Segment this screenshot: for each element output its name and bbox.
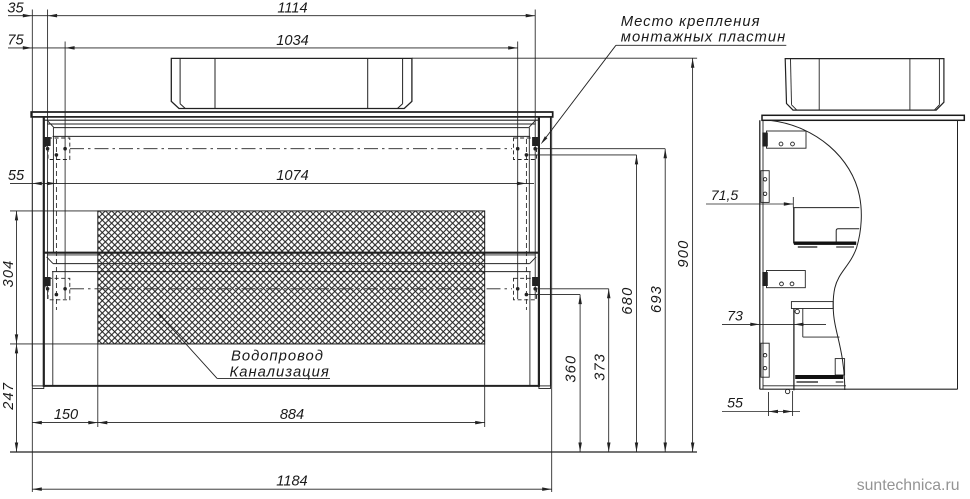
svg-text:Место крепления: Место крепления (621, 14, 761, 30)
svg-text:360: 360 (564, 355, 580, 383)
svg-text:884: 884 (280, 407, 304, 423)
svg-text:1034: 1034 (276, 33, 308, 49)
svg-text:монтажных пластин: монтажных пластин (621, 30, 786, 46)
svg-text:900: 900 (676, 240, 692, 268)
svg-text:1074: 1074 (276, 168, 308, 184)
svg-text:1114: 1114 (277, 1, 307, 17)
svg-text:247: 247 (1, 382, 17, 411)
svg-text:150: 150 (54, 407, 78, 423)
svg-text:304: 304 (1, 260, 17, 288)
svg-text:75: 75 (7, 33, 24, 49)
svg-text:693: 693 (649, 285, 665, 313)
svg-text:suntechnica.ru: suntechnica.ru (857, 477, 960, 494)
svg-text:55: 55 (8, 168, 25, 184)
svg-text:1184: 1184 (276, 474, 307, 490)
svg-text:35: 35 (7, 1, 24, 17)
svg-text:373: 373 (592, 353, 608, 381)
svg-text:71,5: 71,5 (711, 188, 739, 204)
svg-text:Водопровод: Водопровод (231, 349, 324, 365)
svg-text:73: 73 (727, 309, 743, 325)
svg-text:680: 680 (620, 287, 636, 315)
svg-text:55: 55 (727, 396, 743, 412)
